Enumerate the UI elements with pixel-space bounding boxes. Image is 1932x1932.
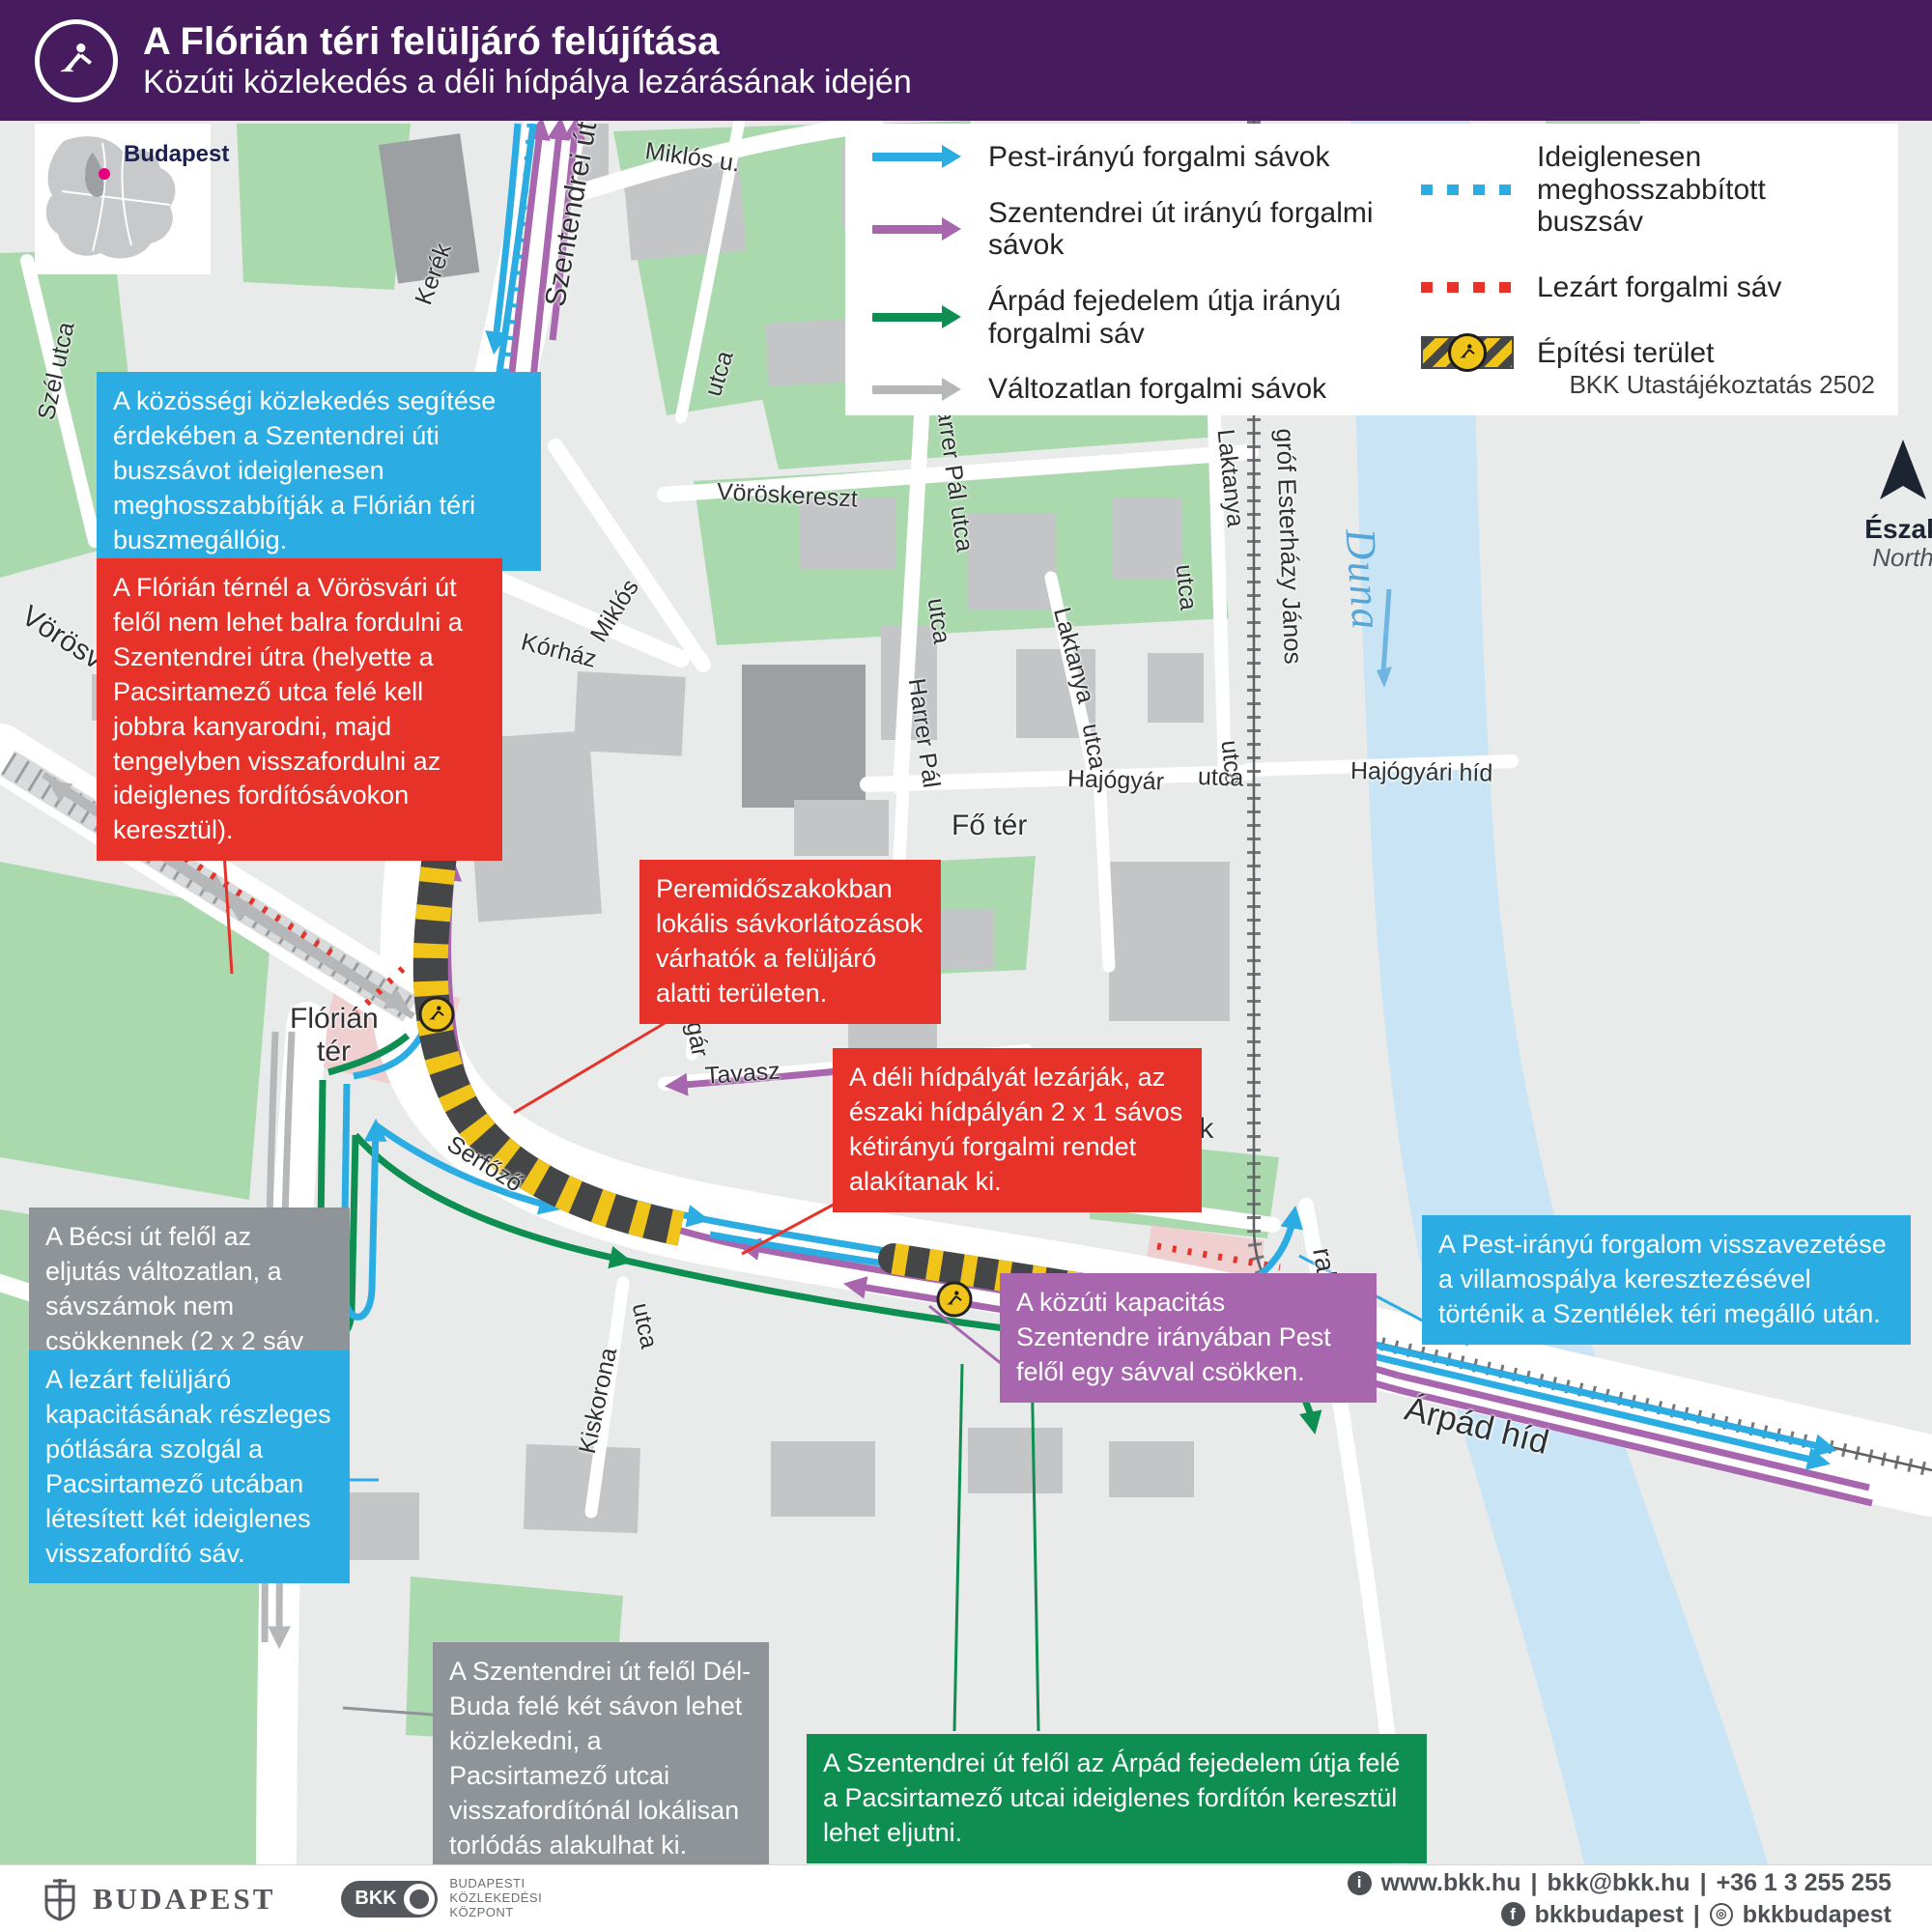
legend-label: Árpád fejedelem útja irányú forgalmi sáv <box>988 285 1392 350</box>
budapest-crest-icon <box>41 1877 79 1921</box>
header-text: A Flórián téri felüljáró felújítása Közú… <box>143 20 912 100</box>
callout-bus-lane: A közösségi közlekedés segítése érdekébe… <box>97 372 541 571</box>
budapest-inset-map: Budapest <box>35 124 211 274</box>
contact-phone: +36 1 3 255 255 <box>1717 1867 1891 1899</box>
footer-contact: i www.bkk.hu | bkk@bkk.hu | +36 1 3 255 … <box>1348 1867 1891 1930</box>
legend-item-szentendrei: Szentendrei út irányú forgalmi sávok <box>872 197 1392 262</box>
street-label-hajogyar: Hajógyár <box>1066 765 1164 796</box>
callout-south-closure: A déli hídpályát lezárják, az északi híd… <box>833 1048 1202 1212</box>
facebook-icon: f <box>1501 1902 1525 1926</box>
callout-no-left-turn: A Flórián térnél a Vörösvári út felől ne… <box>97 558 502 861</box>
blue-dotted-icon <box>1421 185 1514 195</box>
legend-label: Pest-irányú forgalmi sávok <box>988 141 1329 174</box>
callout-del-buda: A Szentendrei út felől Dél-Buda felé két… <box>433 1642 769 1875</box>
contact-web: www.bkk.hu <box>1381 1867 1521 1899</box>
page-title: A Flórián téri felüljáró felújítása <box>143 20 912 63</box>
social-facebook: bkkbudapest <box>1535 1899 1684 1931</box>
purple-arrow-icon <box>872 225 965 234</box>
legend-label: Építési terület <box>1537 337 1714 370</box>
bkk-org-name: BUDAPESTI KÖZLEKEDÉSI KÖZPONT <box>449 1877 542 1920</box>
page-subtitle: Közúti közlekedés a déli hídpálya lezárá… <box>143 65 912 100</box>
callout-pest-return: A Pest-irányú forgalom visszavezetése a … <box>1422 1215 1911 1345</box>
inset-label: Budapest <box>124 141 229 168</box>
budapest-wordmark: BUDAPEST <box>93 1882 275 1917</box>
bkk-pill-icon: BKK <box>341 1881 438 1918</box>
legend-label: Szentendrei út irányú forgalmi sávok <box>988 197 1392 262</box>
info-icon: i <box>1348 1871 1372 1895</box>
separator: | <box>1700 1867 1707 1899</box>
contact-line-1: i www.bkk.hu | bkk@bkk.hu | +36 1 3 255 … <box>1348 1867 1891 1899</box>
place-label-florian-ter: tér <box>317 1036 351 1068</box>
separator: | <box>1693 1899 1700 1931</box>
legend-label: Lezárt forgalmi sáv <box>1537 271 1781 304</box>
legend-item-unchanged: Változatlan forgalmi sávok <box>872 373 1392 406</box>
callout-capacity: A közúti kapacitás Szentendre irányában … <box>1000 1273 1377 1403</box>
legend-item-bus: Ideiglenesen meghosszabbított buszsáv <box>1421 141 1875 239</box>
legend-item-closed: Lezárt forgalmi sáv <box>1421 271 1875 304</box>
contact-line-2: f bkkbudapest | ◎ bkkbudapest <box>1348 1899 1891 1931</box>
legend-label: Változatlan forgalmi sávok <box>988 373 1326 406</box>
legend-panel: Pest-irányú forgalmi sávok Szentendrei ú… <box>845 124 1898 415</box>
green-arrow-icon <box>872 313 965 322</box>
bkk-org-line2: KÖZLEKEDÉSI <box>449 1891 542 1906</box>
bkk-org-line3: KÖZPONT <box>449 1906 542 1920</box>
construction-hatch-icon <box>1421 336 1514 369</box>
street-label-tavasz: Tavasz <box>704 1058 781 1091</box>
callout-turnaround: A lezárt felüljáró kapacitásának részleg… <box>29 1350 350 1583</box>
contact-email: bkk@bkk.hu <box>1548 1867 1690 1899</box>
callout-peak-restrictions: Peremidőszakokban lokális sávkorlátozáso… <box>639 860 941 1024</box>
compass-label-hu: Észak <box>1840 514 1932 545</box>
instagram-icon: ◎ <box>1710 1903 1733 1926</box>
river-label-duna: Duna <box>1336 527 1392 633</box>
footer-bar: BUDAPEST BKK BUDAPESTI KÖZLEKEDÉSI KÖZPO… <box>0 1864 1932 1932</box>
north-arrow-icon <box>1878 440 1928 503</box>
legend-item-arpad: Árpád fejedelem útja irányú forgalmi sáv <box>872 285 1392 350</box>
bkk-wordmark: BKK <box>355 1888 396 1910</box>
street-label-utca-2: utca <box>1170 563 1203 611</box>
compass: Észak North <box>1840 440 1932 573</box>
legend-item-construction: Építési terület <box>1421 336 1875 369</box>
separator: | <box>1531 1867 1538 1899</box>
location-dot <box>99 168 110 180</box>
header-bar: A Flórián téri felüljáró felújítása Közú… <box>0 0 1932 121</box>
red-dotted-icon <box>1421 282 1514 293</box>
budapest-logo: BUDAPEST <box>41 1877 275 1921</box>
bkk-logo: BKK BUDAPESTI KÖZLEKEDÉSI KÖZPONT <box>341 1877 542 1920</box>
roadworks-icon <box>35 19 118 102</box>
place-label-fo-ter: Fő tér <box>952 810 1027 842</box>
blue-arrow-icon <box>872 153 965 161</box>
place-label-florian: Flórián <box>290 1003 379 1036</box>
gray-arrow-icon <box>872 385 965 394</box>
legend-column-1: Pest-irányú forgalmi sávok Szentendrei ú… <box>872 141 1392 406</box>
bkk-org-line1: BUDAPESTI <box>449 1877 542 1891</box>
social-instagram: bkkbudapest <box>1743 1899 1891 1931</box>
worker-icon <box>1448 333 1487 372</box>
street-label-hajogyari-hid: Hajógyári híd <box>1350 757 1493 788</box>
legend-note: BKK Utastájékoztatás 2502 <box>1569 370 1875 400</box>
footer-logos: BUDAPEST BKK BUDAPESTI KÖZLEKEDÉSI KÖZPO… <box>41 1877 542 1921</box>
legend-label: Ideiglenesen meghosszabbított buszsáv <box>1537 141 1875 239</box>
legend-item-pest: Pest-irányú forgalmi sávok <box>872 141 1392 174</box>
compass-label-en: North <box>1840 543 1932 573</box>
street-label-utca-11: utca <box>1197 763 1243 793</box>
legend-column-2: Ideiglenesen meghosszabbított buszsáv Le… <box>1421 141 1875 406</box>
callout-arpad-access: A Szentendrei út felől az Árpád fejedele… <box>807 1734 1427 1863</box>
